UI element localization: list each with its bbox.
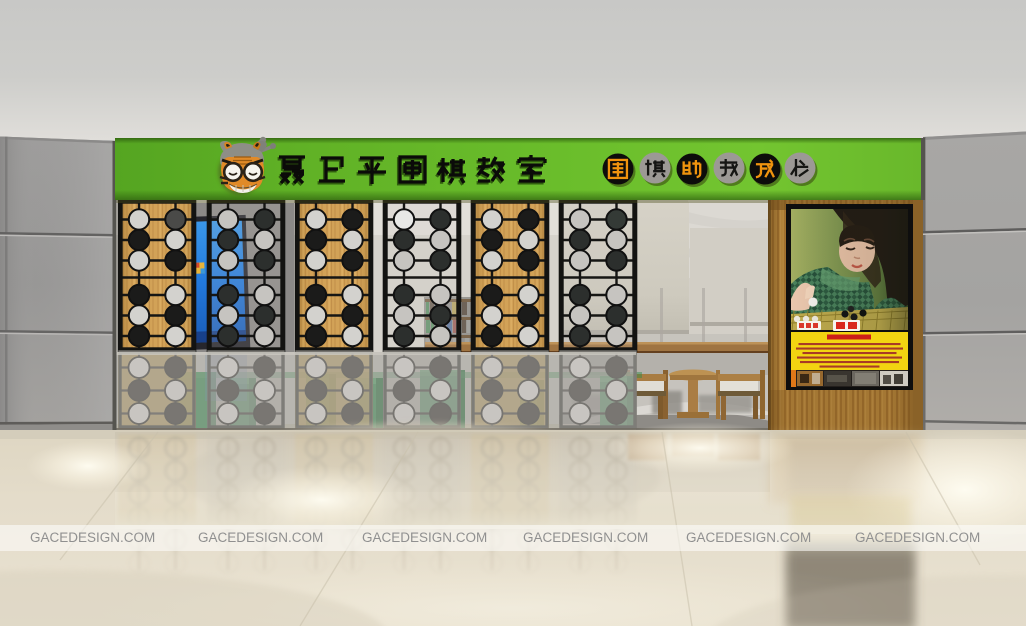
svg-text:GACEDESIGN.COM: GACEDESIGN.COM [30,530,155,545]
svg-text:GACEDESIGN.COM: GACEDESIGN.COM [523,530,648,545]
svg-text:GACEDESIGN.COM: GACEDESIGN.COM [855,530,980,545]
svg-text:GACEDESIGN.COM: GACEDESIGN.COM [198,530,323,545]
svg-text:GACEDESIGN.COM: GACEDESIGN.COM [686,530,811,545]
svg-text:GACEDESIGN.COM: GACEDESIGN.COM [362,530,487,545]
